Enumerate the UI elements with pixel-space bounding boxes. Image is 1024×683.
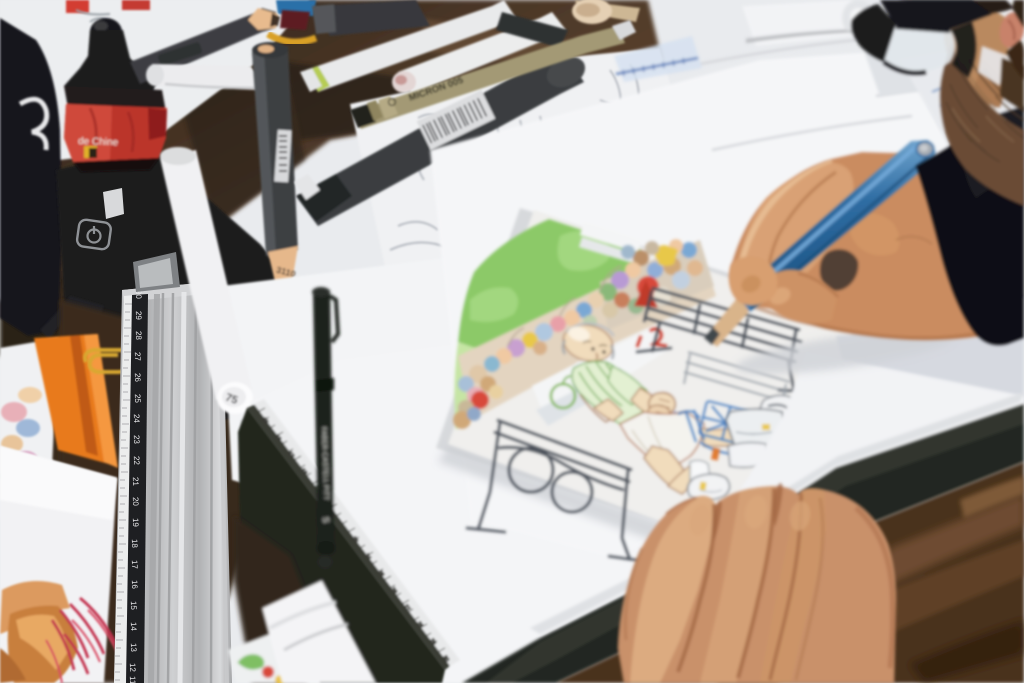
- svg-text:21: 21: [131, 477, 140, 487]
- svg-text:S: S: [321, 517, 331, 523]
- svg-text:15: 15: [129, 601, 138, 611]
- svg-text:14: 14: [129, 622, 138, 632]
- svg-text:27: 27: [133, 352, 142, 362]
- svg-text:13: 13: [129, 643, 138, 653]
- svg-text:28: 28: [134, 331, 143, 341]
- svg-text:23: 23: [132, 435, 141, 445]
- svg-text:20: 20: [131, 497, 140, 507]
- svg-text:12: 12: [128, 663, 137, 673]
- svg-text:18: 18: [130, 539, 139, 549]
- svg-text:29: 29: [134, 311, 143, 321]
- svg-text:19: 19: [131, 518, 140, 528]
- svg-text:17: 17: [130, 560, 139, 570]
- svg-text:16: 16: [130, 580, 139, 590]
- svg-text:24: 24: [132, 414, 141, 424]
- svg-text:11: 11: [128, 676, 137, 683]
- svg-text:22: 22: [132, 456, 141, 466]
- svg-text:25: 25: [133, 394, 142, 404]
- svg-text:26: 26: [133, 373, 142, 383]
